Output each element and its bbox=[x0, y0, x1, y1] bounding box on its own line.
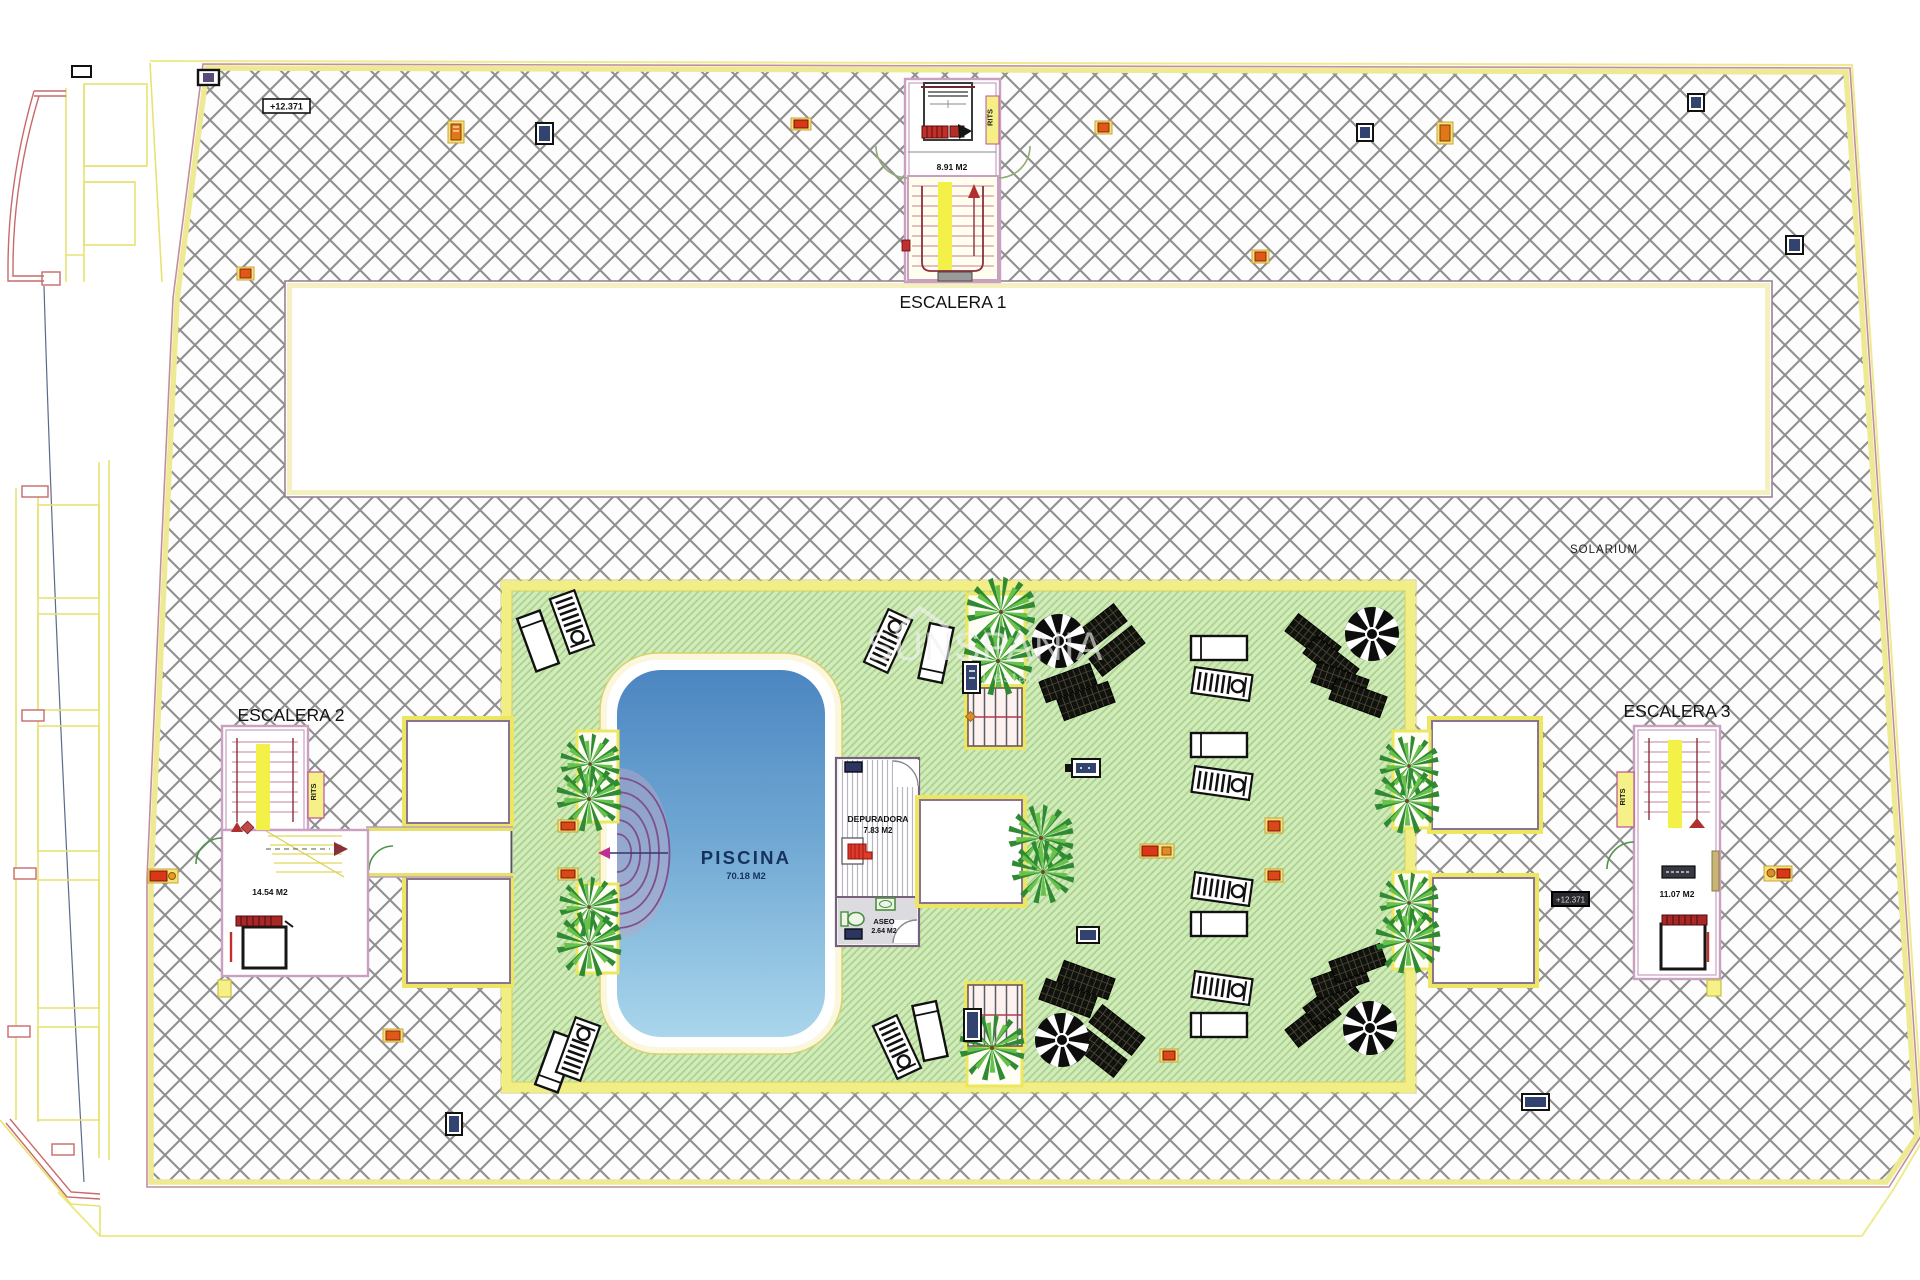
svg-text:ESCALERA 2: ESCALERA 2 bbox=[238, 705, 345, 725]
svg-text:RITS: RITS bbox=[309, 783, 318, 800]
svg-text:+12.371: +12.371 bbox=[270, 102, 303, 112]
svg-text:2.64 M2: 2.64 M2 bbox=[871, 928, 896, 935]
svg-text:ASEO: ASEO bbox=[873, 917, 894, 926]
svg-text:SOLARIUM: SOLARIUM bbox=[1570, 544, 1638, 556]
svg-text:14.54 M2: 14.54 M2 bbox=[252, 887, 288, 897]
svg-text:SUNSPANIA: SUNSPANIA bbox=[866, 625, 1103, 669]
svg-text:7.83 M2: 7.83 M2 bbox=[864, 826, 893, 835]
svg-text:RITS: RITS bbox=[1618, 788, 1627, 805]
svg-text:+12.371: +12.371 bbox=[1556, 896, 1586, 905]
svg-text:8.91 M2: 8.91 M2 bbox=[937, 162, 968, 172]
svg-text:RITS: RITS bbox=[986, 109, 995, 126]
svg-text:70.18 M2: 70.18 M2 bbox=[726, 871, 766, 882]
svg-text:DEPURADORA: DEPURADORA bbox=[848, 814, 909, 824]
svg-text:ESCALERA 3: ESCALERA 3 bbox=[1624, 701, 1731, 721]
svg-text:ESCALERA 1: ESCALERA 1 bbox=[900, 292, 1007, 312]
svg-text:11.07 M2: 11.07 M2 bbox=[1660, 889, 1695, 899]
svg-text:PISCINA: PISCINA bbox=[701, 847, 791, 868]
